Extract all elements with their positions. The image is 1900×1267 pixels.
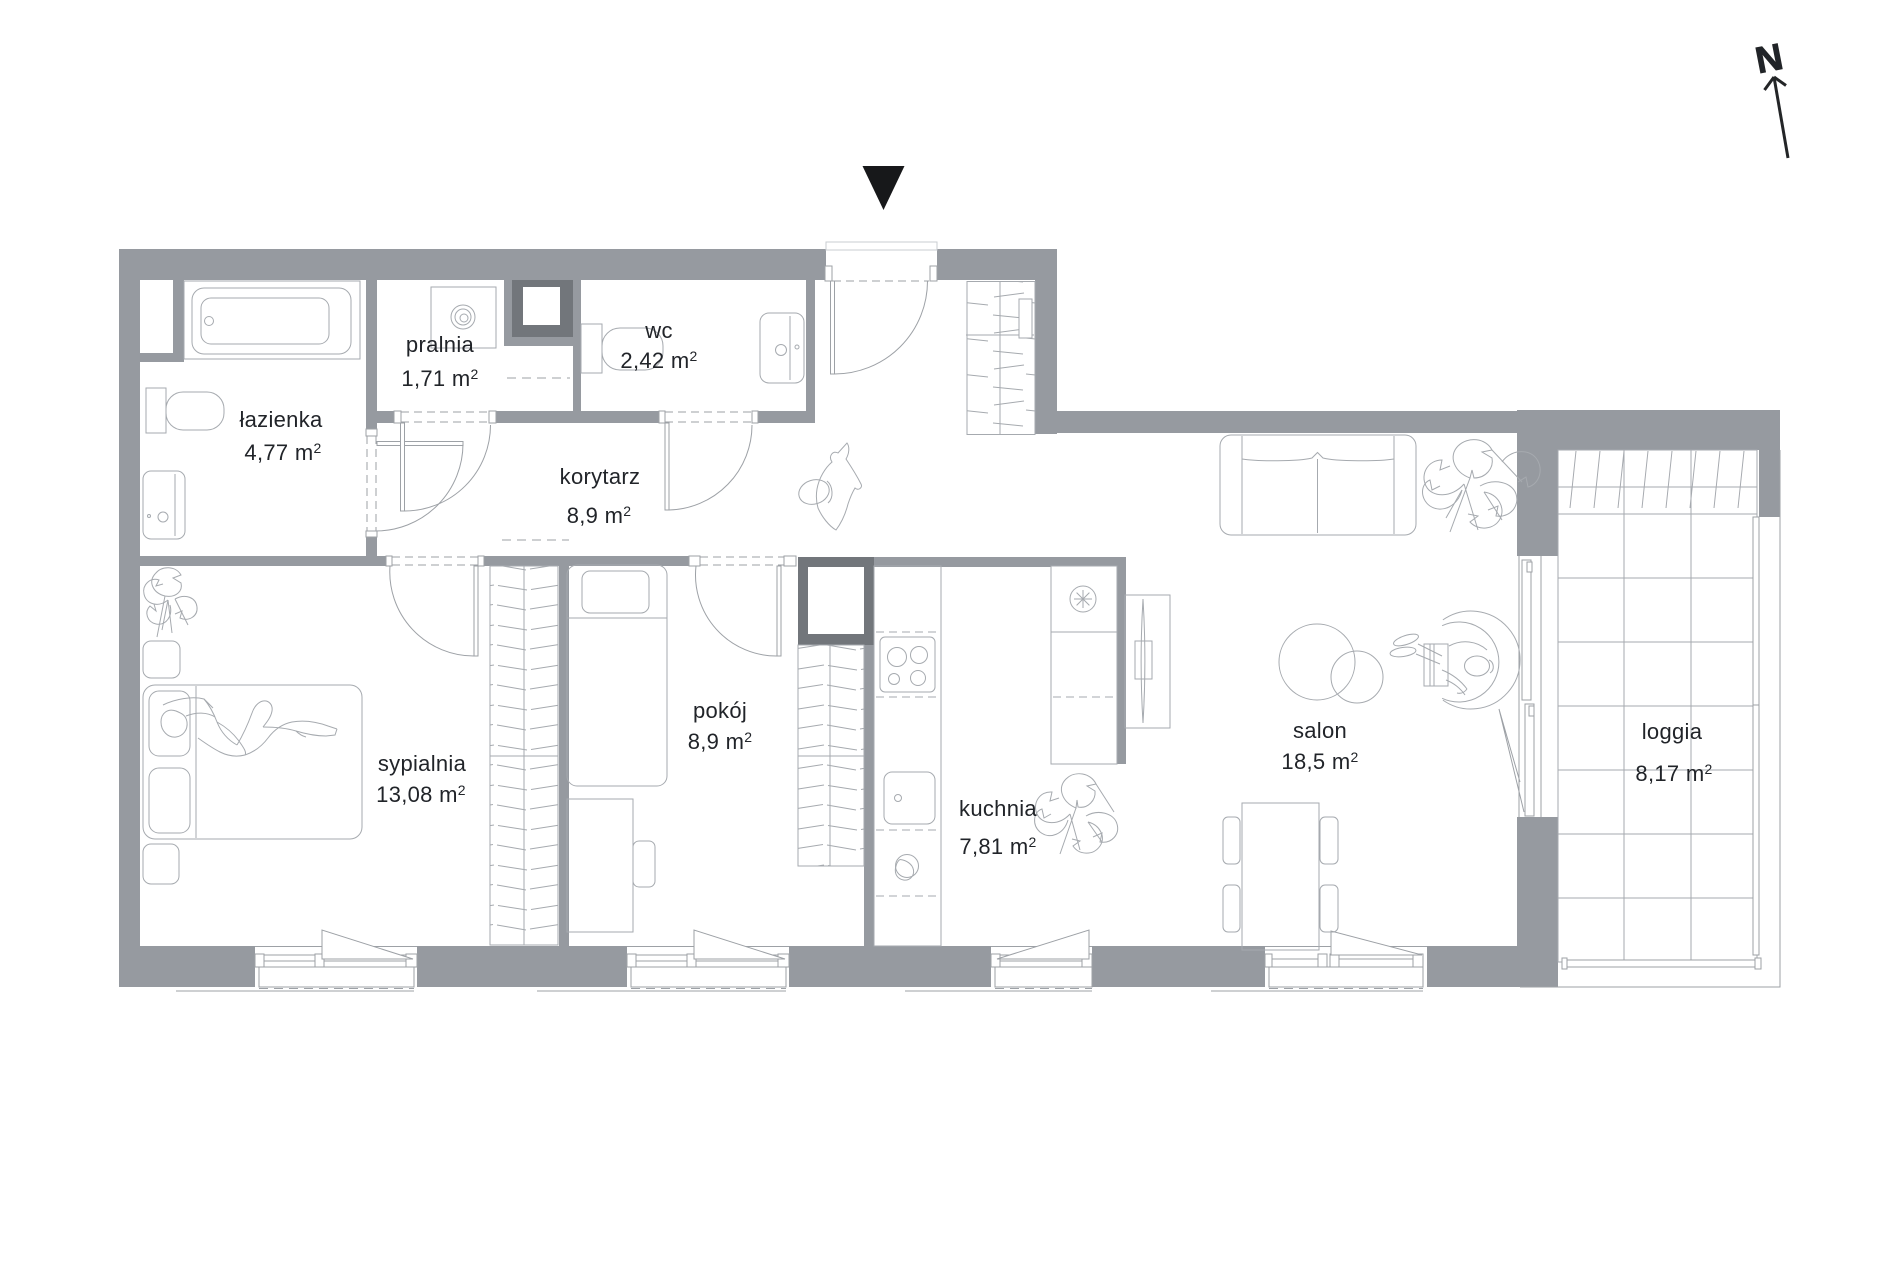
svg-text:pokój: pokój [693, 698, 747, 723]
svg-text:pralnia: pralnia [406, 332, 475, 357]
svg-text:8,9 m2: 8,9 m2 [567, 503, 632, 528]
svg-text:korytarz: korytarz [560, 464, 641, 489]
svg-text:2,42 m2: 2,42 m2 [620, 348, 697, 373]
svg-text:1,71 m2: 1,71 m2 [401, 366, 478, 391]
svg-text:7,81 m2: 7,81 m2 [959, 834, 1036, 859]
svg-text:8,17 m2: 8,17 m2 [1635, 761, 1712, 786]
svg-text:18,5 m2: 18,5 m2 [1281, 749, 1358, 774]
svg-text:sypialnia: sypialnia [378, 751, 467, 776]
svg-text:kuchnia: kuchnia [959, 796, 1037, 821]
svg-text:N: N [1752, 36, 1786, 81]
svg-text:salon: salon [1293, 718, 1347, 743]
svg-text:4,77 m2: 4,77 m2 [244, 440, 321, 465]
svg-text:loggia: loggia [1642, 719, 1703, 744]
svg-text:łazienka: łazienka [239, 407, 323, 432]
svg-text:13,08 m2: 13,08 m2 [376, 782, 466, 807]
svg-text:8,9 m2: 8,9 m2 [688, 729, 753, 754]
svg-text:wc: wc [644, 318, 673, 343]
